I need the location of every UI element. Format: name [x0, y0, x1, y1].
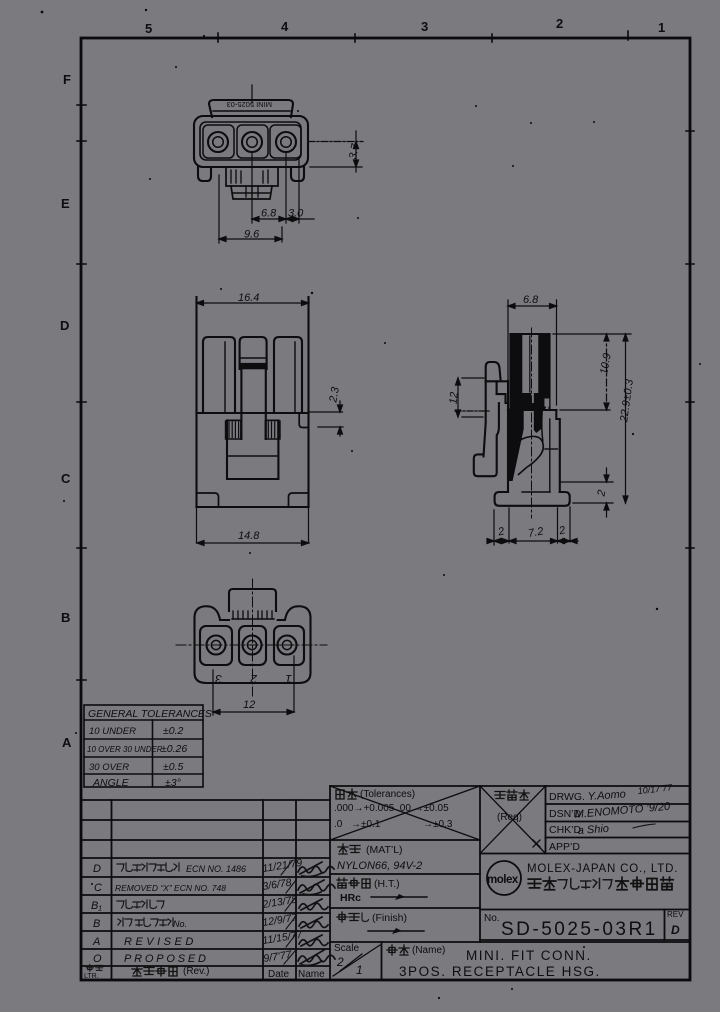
svg-text:2: 2 — [557, 524, 566, 537]
svg-text:O: O — [93, 953, 102, 965]
svg-text:±0.5: ±0.5 — [163, 761, 184, 773]
svg-text:Y.Aomo: Y.Aomo — [587, 788, 626, 803]
svg-text:F: F — [63, 72, 71, 87]
svg-text:APP’D: APP’D — [549, 841, 580, 853]
svg-text:GENERAL TOLERANCES: GENERAL TOLERANCES — [88, 708, 212, 720]
svg-text:2: 2 — [250, 672, 258, 686]
svg-text:A: A — [92, 936, 100, 948]
svg-text:C: C — [94, 882, 102, 894]
svg-text:1: 1 — [658, 20, 665, 35]
svg-text:10 OVER 30 UNDER: 10 OVER 30 UNDER — [87, 745, 163, 754]
svg-text:14.8: 14.8 — [238, 530, 260, 542]
svg-text:.0: .0 — [334, 819, 343, 830]
svg-text:3: 3 — [421, 19, 428, 34]
svg-text:REMOVED “X” ECN NO. 748: REMOVED “X” ECN NO. 748 — [115, 883, 226, 893]
svg-text:E: E — [61, 196, 70, 211]
svg-text:3POS. RECEPTACLE HSG.: 3POS. RECEPTACLE HSG. — [399, 964, 601, 979]
svg-text:6.8: 6.8 — [523, 294, 539, 306]
svg-text:(Req): (Req) — [497, 812, 522, 823]
svg-text:.00 →±0.05: .00 →±0.05 — [397, 803, 449, 814]
svg-text:12: 12 — [448, 391, 461, 404]
svg-text:MINI 5025-03: MINI 5025-03 — [227, 100, 272, 109]
svg-text:2: 2 — [595, 489, 608, 498]
svg-text:10 UNDER: 10 UNDER — [89, 726, 136, 737]
svg-text:ANGLE: ANGLE — [92, 777, 130, 789]
svg-text:D: D — [93, 863, 101, 875]
svg-text:9/7'77: 9/7'77 — [263, 949, 294, 965]
svg-text:C: C — [61, 471, 71, 486]
svg-text:3.7: 3.7 — [347, 142, 362, 160]
svg-text:molex: molex — [487, 874, 519, 886]
svg-text:2: 2 — [496, 525, 505, 538]
svg-text:5: 5 — [145, 21, 152, 36]
svg-text:2/13/78: 2/13/78 — [261, 894, 299, 912]
svg-text:REV: REV — [667, 910, 684, 919]
svg-text:2: 2 — [556, 16, 563, 31]
svg-text:(H.T.): (H.T.) — [374, 878, 400, 890]
svg-text:(Tolerances): (Tolerances) — [360, 789, 415, 800]
svg-text:→±0.3: →±0.3 — [423, 819, 453, 830]
svg-text:6.8: 6.8 — [261, 208, 277, 220]
svg-text:10/17’77: 10/17’77 — [637, 782, 673, 796]
svg-text:(MAT’L): (MAT’L) — [366, 844, 403, 856]
svg-text:Date: Date — [268, 969, 290, 980]
svg-text:.000→+0.005: .000→+0.005 — [334, 803, 395, 814]
svg-text:DRWG.: DRWG. — [549, 791, 585, 803]
svg-text:1: 1 — [356, 963, 363, 977]
svg-text:Name: Name — [298, 969, 325, 980]
svg-text:30 OVER: 30 OVER — [89, 762, 129, 773]
svg-text:ECN NO. 1486: ECN NO. 1486 — [186, 864, 246, 874]
svg-text:3.0: 3.0 — [288, 208, 304, 220]
svg-text:4: 4 — [281, 19, 289, 34]
svg-text:PROPOSED: PROPOSED — [124, 953, 209, 965]
svg-text:16.4: 16.4 — [238, 292, 259, 304]
svg-text:B₁: B₁ — [91, 900, 102, 912]
svg-text:1: 1 — [285, 672, 292, 686]
svg-text:22.9±0.3: 22.9±0.3 — [618, 378, 636, 424]
svg-text:12/9/77: 12/9/77 — [262, 911, 300, 929]
svg-text:(Name): (Name) — [412, 945, 445, 956]
svg-text:±3°: ±3° — [165, 777, 181, 789]
svg-text:MINI. FIT CONN.: MINI. FIT CONN. — [466, 948, 592, 963]
svg-text:NYLON66, 94V-2: NYLON66, 94V-2 — [337, 860, 422, 872]
svg-text:REVISED: REVISED — [124, 936, 197, 948]
svg-text:A: A — [62, 735, 72, 750]
svg-text:D: D — [60, 318, 69, 333]
svg-text:No.: No. — [173, 919, 187, 929]
svg-text:±0.26: ±0.26 — [161, 743, 187, 755]
svg-text:10.9: 10.9 — [598, 352, 614, 375]
svg-text:(Rev.): (Rev.) — [183, 966, 209, 977]
svg-text:D: D — [671, 923, 680, 937]
svg-text:B: B — [61, 610, 70, 625]
svg-text:HRc: HRc — [340, 892, 361, 904]
svg-text:7.2: 7.2 — [527, 525, 544, 539]
svg-text:a Shio: a Shio — [577, 823, 609, 837]
svg-text:No.: No. — [484, 913, 500, 924]
svg-text:±0.2: ±0.2 — [163, 725, 184, 737]
svg-text:→±0.1: →±0.1 — [351, 819, 381, 830]
svg-text:9.6: 9.6 — [244, 229, 260, 241]
svg-text:3: 3 — [215, 672, 222, 686]
svg-text:(Finish): (Finish) — [372, 912, 407, 924]
svg-text:SD-5025-03R1: SD-5025-03R1 — [501, 919, 658, 940]
svg-text:LTR.: LTR. — [84, 973, 99, 980]
svg-text:MOLEX-JAPAN CO., LTD.: MOLEX-JAPAN CO., LTD. — [527, 863, 678, 875]
svg-text:Scale: Scale — [334, 943, 359, 954]
svg-text:2: 2 — [336, 955, 344, 969]
svg-text:B: B — [93, 918, 100, 930]
svg-text:12: 12 — [243, 699, 255, 711]
